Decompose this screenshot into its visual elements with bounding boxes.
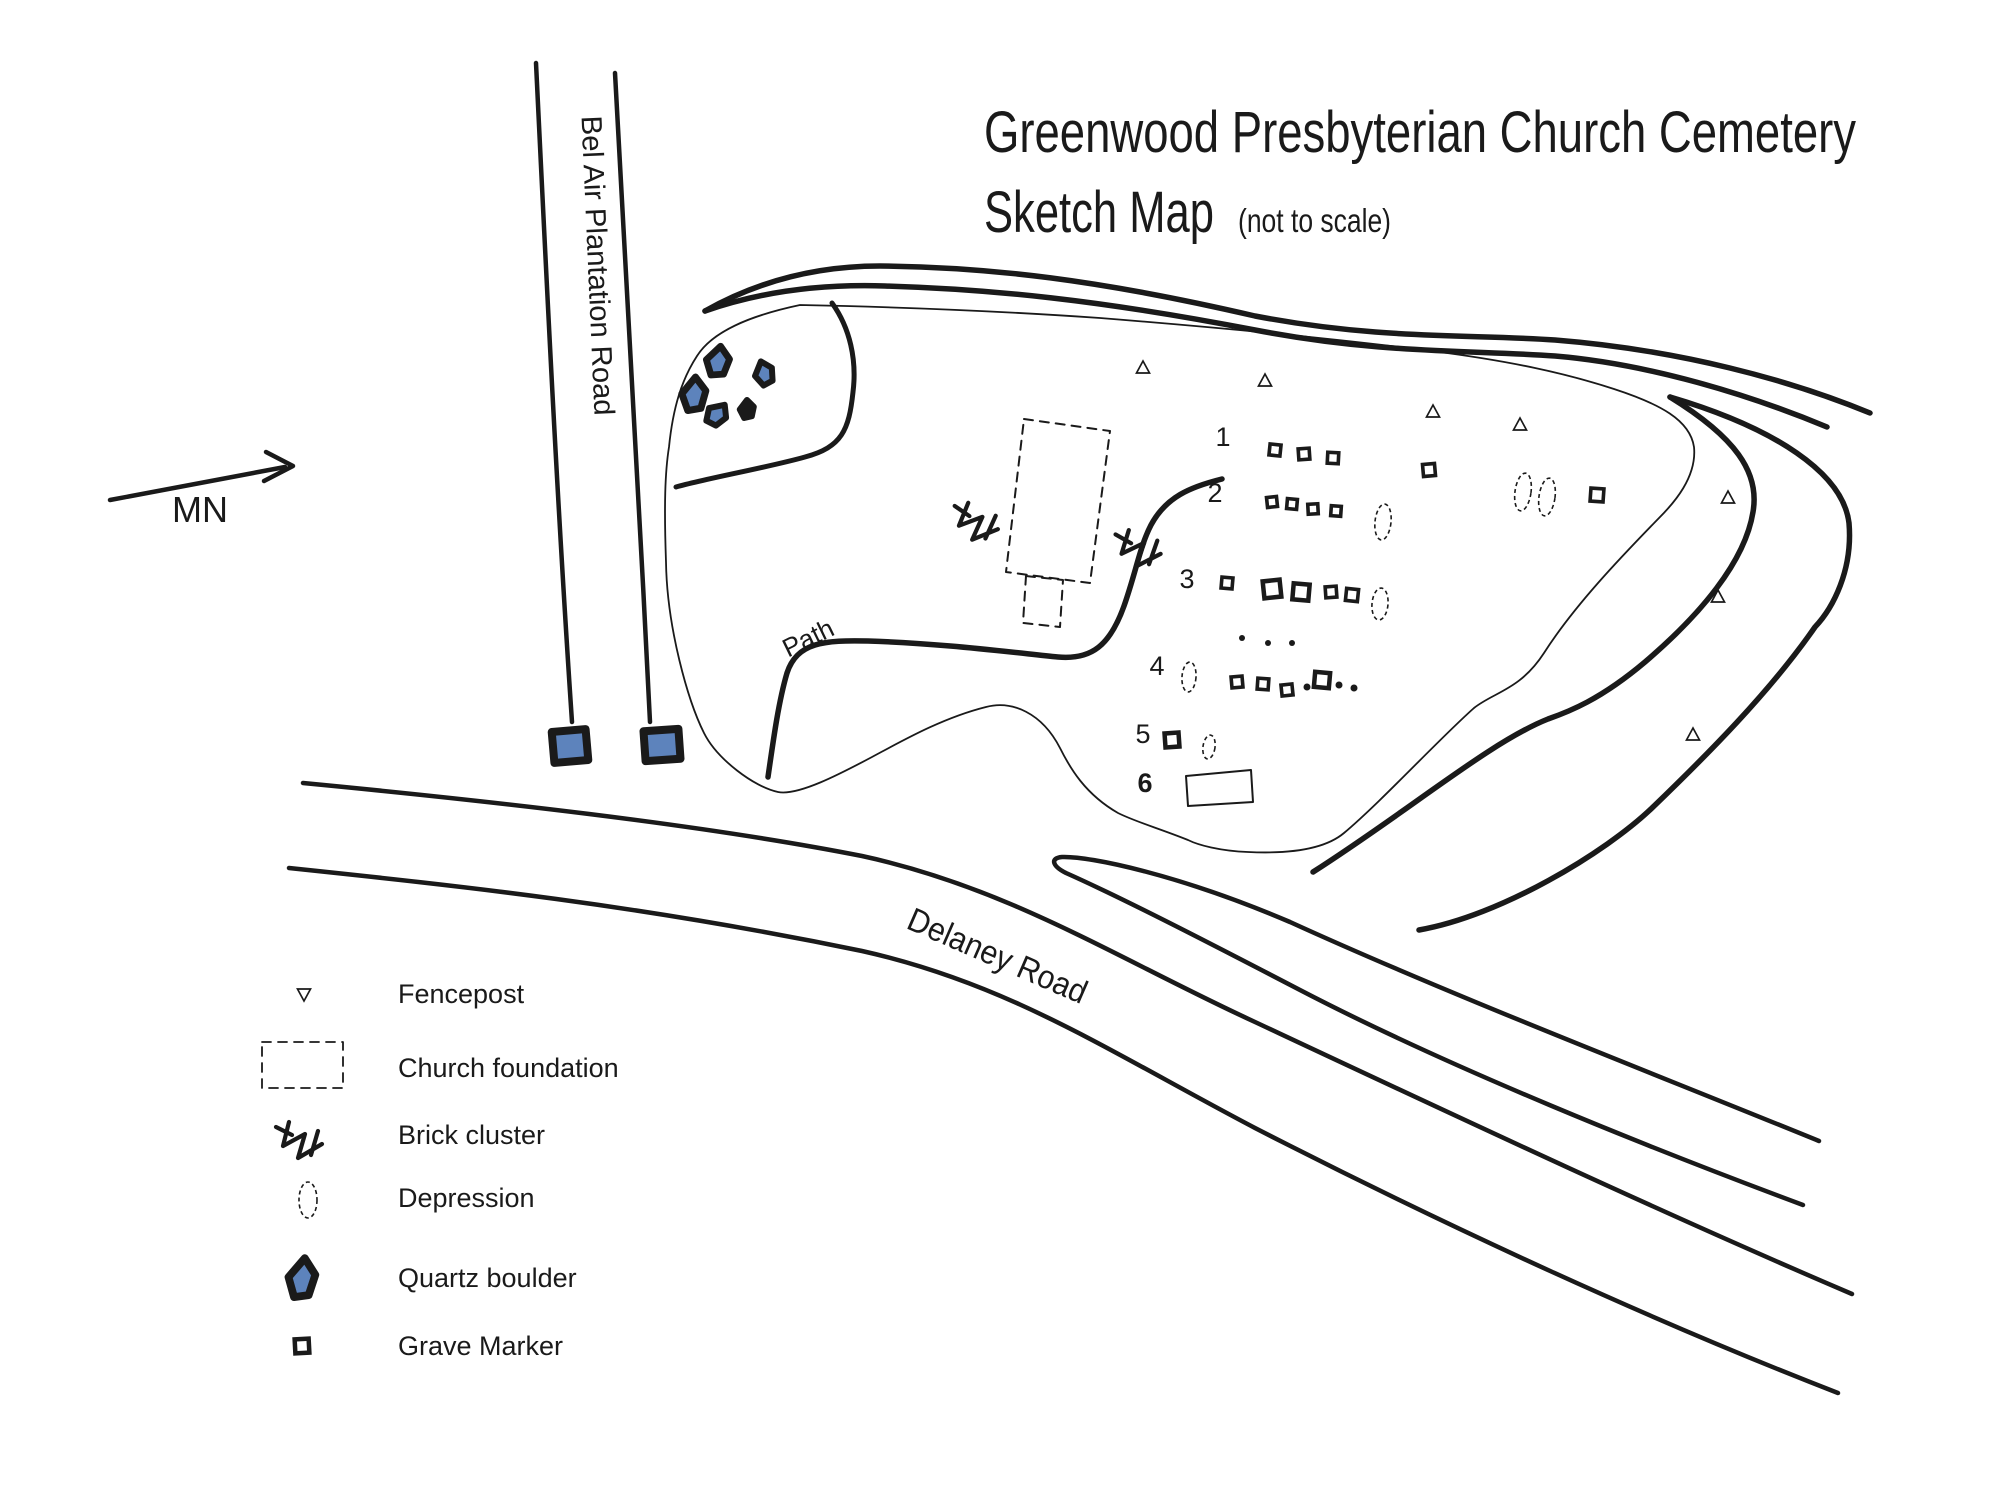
quartz-boulder-icon [740,400,754,418]
row-number-label: 4 [1149,651,1164,681]
fencepost-icon [1687,728,1700,740]
dot-marker-icon [1239,635,1245,641]
grave-marker-icon [1590,488,1604,502]
row-number-label: 6 [1137,768,1152,798]
brick-cluster-icon [276,1122,322,1158]
depression-icon [1181,662,1197,693]
row-number-label: 5 [1135,719,1150,749]
brick-cluster-icon [1114,529,1162,567]
legend-label-grave-marker: Grave Marker [398,1331,563,1361]
legend-label-church-foundation: Church foundation [398,1053,619,1083]
magnetic-north-label: MN [172,489,228,530]
legend-label-fencepost: Fencepost [398,979,525,1009]
fencepost-icon [1137,361,1150,373]
map-title-scale-note: (not to scale) [1238,202,1391,239]
legend-label-brick-cluster: Brick cluster [398,1120,545,1150]
grave-marker-icon [1422,463,1435,476]
fencepost-icon [1259,374,1272,386]
grave-marker-icon [1314,672,1330,688]
depression-icon [1512,472,1533,512]
quartz-boulder-icon [704,344,732,377]
dot-marker-icon [1265,640,1271,646]
brick-cluster-icon [950,501,1001,543]
grave-marker-icon [1231,676,1243,688]
walking-path [768,479,1222,777]
grave-marker-icon [1257,678,1269,690]
church-foundation-outline [1006,419,1110,583]
grave-marker-icon [1281,684,1293,696]
quartz-boulder-icon [752,359,776,387]
grave-marker-icon [1263,580,1282,599]
row-number-label: 3 [1179,564,1194,594]
map-title-line1: Greenwood Presbyterian Church Cemetery [984,100,1856,165]
legend-label-quartz-boulder: Quartz boulder [398,1263,577,1293]
path-label: Path [777,613,838,663]
belair-road-label: Bel Air Plantation Road [574,115,619,416]
sketch-map-page: 123456 Greenwood Presbyterian Church Cem… [0,0,2000,1500]
gate-post-icon [643,729,680,761]
grave-marker-icon [1308,504,1319,515]
fencepost-icon [298,989,311,1001]
grave-marker-icon [1287,499,1298,510]
dot-marker-icon [1304,684,1311,691]
grave-marker-icon [1165,733,1180,748]
church-foundation-annex-outline [1023,576,1063,627]
legend-church-foundation-icon [262,1042,343,1088]
belair-road-left-edge [536,63,572,722]
quartz-boulder-icon [286,1256,318,1299]
grave-marker-icon [295,1339,310,1354]
row6-slab-outline [1186,770,1253,806]
map-title-line2: Sketch Map [984,180,1214,245]
fencepost-icon [1722,491,1735,503]
dot-marker-icon [1351,685,1358,692]
depression-icon [1201,734,1216,759]
road-fork-hairpin [1054,857,1819,1205]
cemetery-sketch-map: 123456 Greenwood Presbyterian Church Cem… [0,0,2000,1500]
grave-marker-icon [1298,448,1310,460]
dot-marker-icon [1336,682,1343,689]
grave-marker-icon [1221,577,1233,589]
grave-marker-icon [1292,583,1309,600]
row-number-label: 1 [1215,422,1230,452]
depression-icon [1371,587,1390,620]
row-number-label: 2 [1207,478,1222,508]
fencepost-icon [1427,405,1440,417]
grave-marker-icon [1267,497,1278,508]
fencepost-icon [1514,418,1527,430]
grave-marker-icon [1327,452,1339,464]
depression-icon [1373,503,1393,540]
grave-marker-icon [1269,444,1281,456]
belair-road-right-edge [615,73,650,722]
east-lane-outer-curve [1419,397,1850,930]
gate-post-icon [552,729,589,763]
dot-marker-icon [1289,640,1295,646]
grave-marker-icon [1325,586,1337,598]
depression-icon [299,1182,317,1218]
quartz-boulder-icon [702,398,732,429]
grave-marker-icon [1331,506,1342,517]
grave-marker-icon [1345,588,1358,601]
legend-label-depression: Depression [398,1183,535,1213]
depression-icon [1536,477,1557,517]
